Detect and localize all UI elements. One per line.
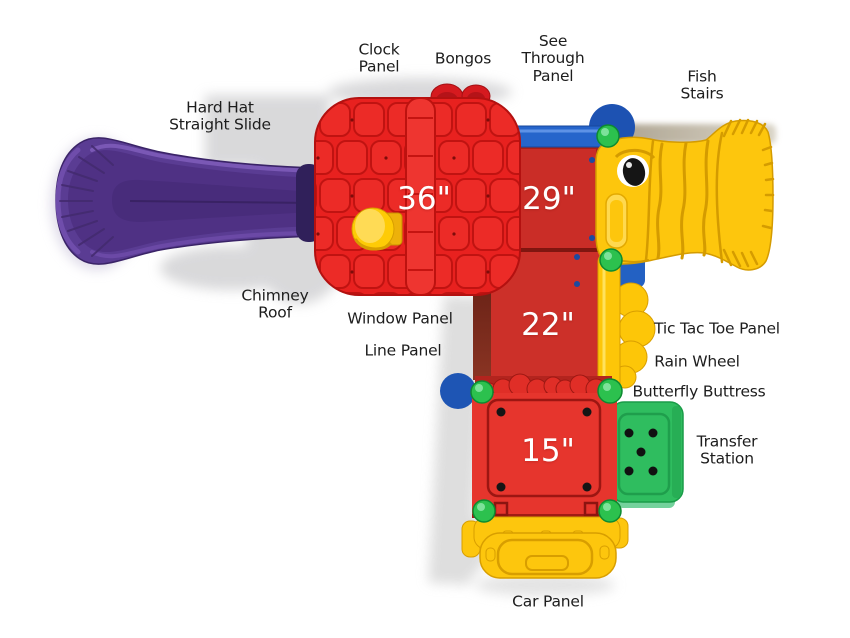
label-tic-tac-toe-panel: Tic Tac Toe Panel bbox=[654, 320, 780, 337]
label-see-through-panel: See Through Panel bbox=[522, 33, 585, 85]
dimension-lower-deck: 15" bbox=[521, 433, 575, 469]
label-clock-panel: Clock Panel bbox=[358, 42, 399, 77]
playground-diagram: 36" 29" 22" 15" Hard Hat Straight Slide … bbox=[0, 0, 850, 638]
fish-stairs bbox=[596, 120, 773, 270]
label-line-panel: Line Panel bbox=[364, 342, 441, 359]
label-bongos: Bongos bbox=[435, 50, 491, 67]
car-panel bbox=[462, 517, 628, 578]
label-chimney-roof: Chimney Roof bbox=[241, 288, 308, 323]
transfer-station bbox=[611, 402, 683, 508]
dimension-upper-deck: 29" bbox=[522, 181, 576, 217]
green-ball bbox=[598, 379, 622, 403]
green-ball bbox=[599, 500, 621, 522]
label-window-panel: Window Panel bbox=[347, 310, 452, 327]
label-butterfly-buttress: Butterfly Buttress bbox=[632, 383, 765, 400]
label-fish-stairs: Fish Stairs bbox=[681, 69, 724, 104]
yellow-knob bbox=[352, 208, 402, 250]
green-ball bbox=[471, 381, 493, 403]
dimension-middle-deck: 22" bbox=[521, 307, 575, 343]
dimension-roof-deck: 36" bbox=[397, 181, 451, 217]
label-rain-wheel: Rain Wheel bbox=[654, 353, 740, 370]
label-hard-hat-straight-slide: Hard Hat Straight Slide bbox=[169, 100, 271, 135]
label-car-panel: Car Panel bbox=[512, 593, 584, 610]
green-ball bbox=[600, 249, 622, 271]
green-ball bbox=[473, 500, 495, 522]
green-ball bbox=[597, 125, 619, 147]
label-transfer-station: Transfer Station bbox=[697, 434, 758, 469]
